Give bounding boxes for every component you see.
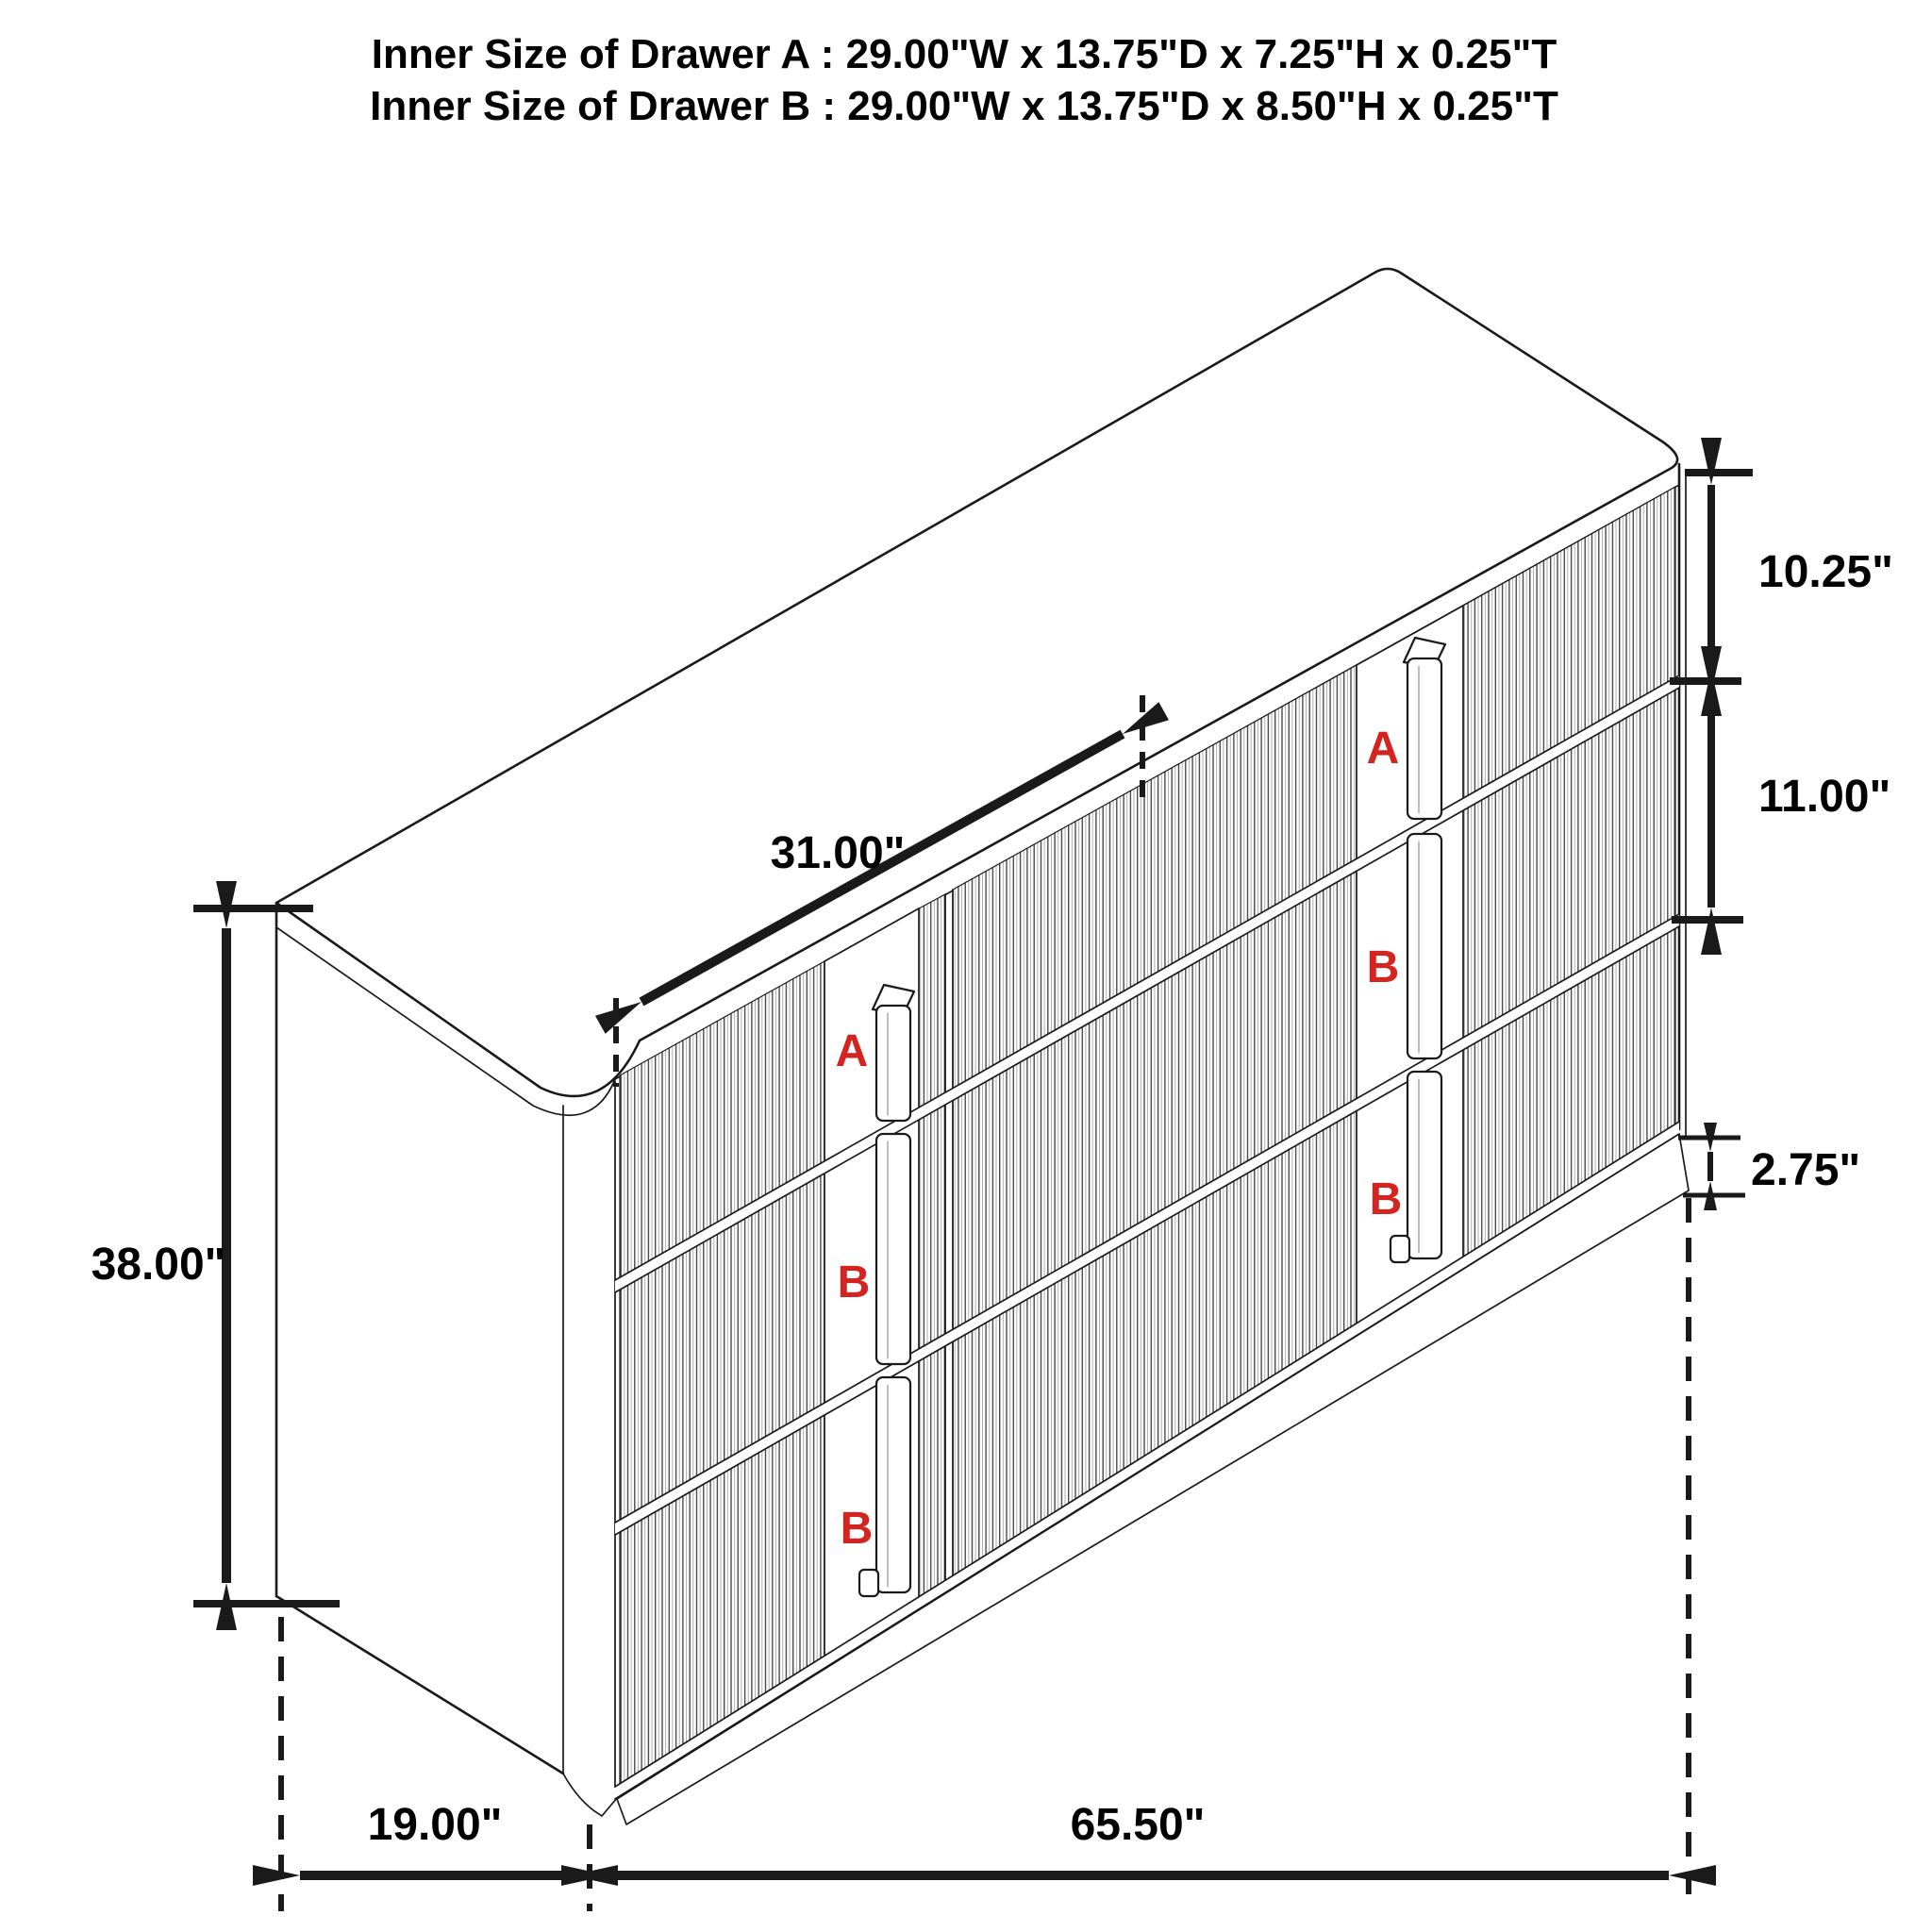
- dim-top-drawer-height: 10.25": [1670, 473, 1893, 681]
- dim-base-height-label: 2.75": [1751, 1145, 1860, 1195]
- fluted-panel-left: [620, 961, 824, 1790]
- drawer-letter-left-bottom: B: [841, 1504, 874, 1554]
- dim-top-drawer-height-label: 10.25": [1758, 547, 1893, 597]
- dresser-dimension-diagram-page: A B B A B B 38.00" 19.00" 65.50": [0, 0, 1932, 1932]
- dim-depth-label: 19.00": [368, 1800, 503, 1850]
- title-line-2: Inner Size of Drawer B : 29.00"W x 13.75…: [370, 83, 1558, 129]
- dim-middle-drawer-height: 11.00": [1672, 693, 1890, 920]
- dresser-dimension-diagram: A B B A B B 38.00" 19.00" 65.50": [0, 0, 1932, 1932]
- drawer-letter-left-top: A: [836, 1026, 869, 1076]
- dim-base-height: 2.75": [1678, 1138, 1860, 1195]
- dim-overall-width-label: 65.50": [1071, 1800, 1206, 1850]
- handle-right-foot: [1391, 1236, 1409, 1262]
- handle-left-foot: [859, 1570, 878, 1596]
- drawer-letter-left-middle: B: [838, 1257, 871, 1307]
- dim-overall-height-label: 38.00": [92, 1240, 226, 1290]
- dim-overall-height: 38.00": [92, 908, 340, 1604]
- title-block: Inner Size of Drawer A : 29.00"W x 13.75…: [370, 31, 1558, 129]
- drawer-letter-right-middle: B: [1367, 942, 1400, 992]
- stack-divider: [945, 890, 953, 1587]
- dim-middle-drawer-height-label: 11.00": [1758, 772, 1890, 822]
- fluted-panel-left-sliver: [919, 894, 945, 1603]
- dim-top-edge-label: 31.00": [771, 828, 906, 878]
- drawer-letter-right-top: A: [1367, 724, 1400, 774]
- drawer-letter-right-bottom: B: [1370, 1174, 1403, 1224]
- title-line-1: Inner Size of Drawer A : 29.00"W x 13.75…: [372, 31, 1557, 77]
- dim-depth: 19.00": [281, 1617, 590, 1911]
- fluted-panel-center: [953, 665, 1357, 1585]
- corner-column-bottom-arc: [563, 1774, 617, 1816]
- side-panel-bottom-edge: [276, 1596, 563, 1774]
- dresser-drawing: [276, 269, 1689, 1824]
